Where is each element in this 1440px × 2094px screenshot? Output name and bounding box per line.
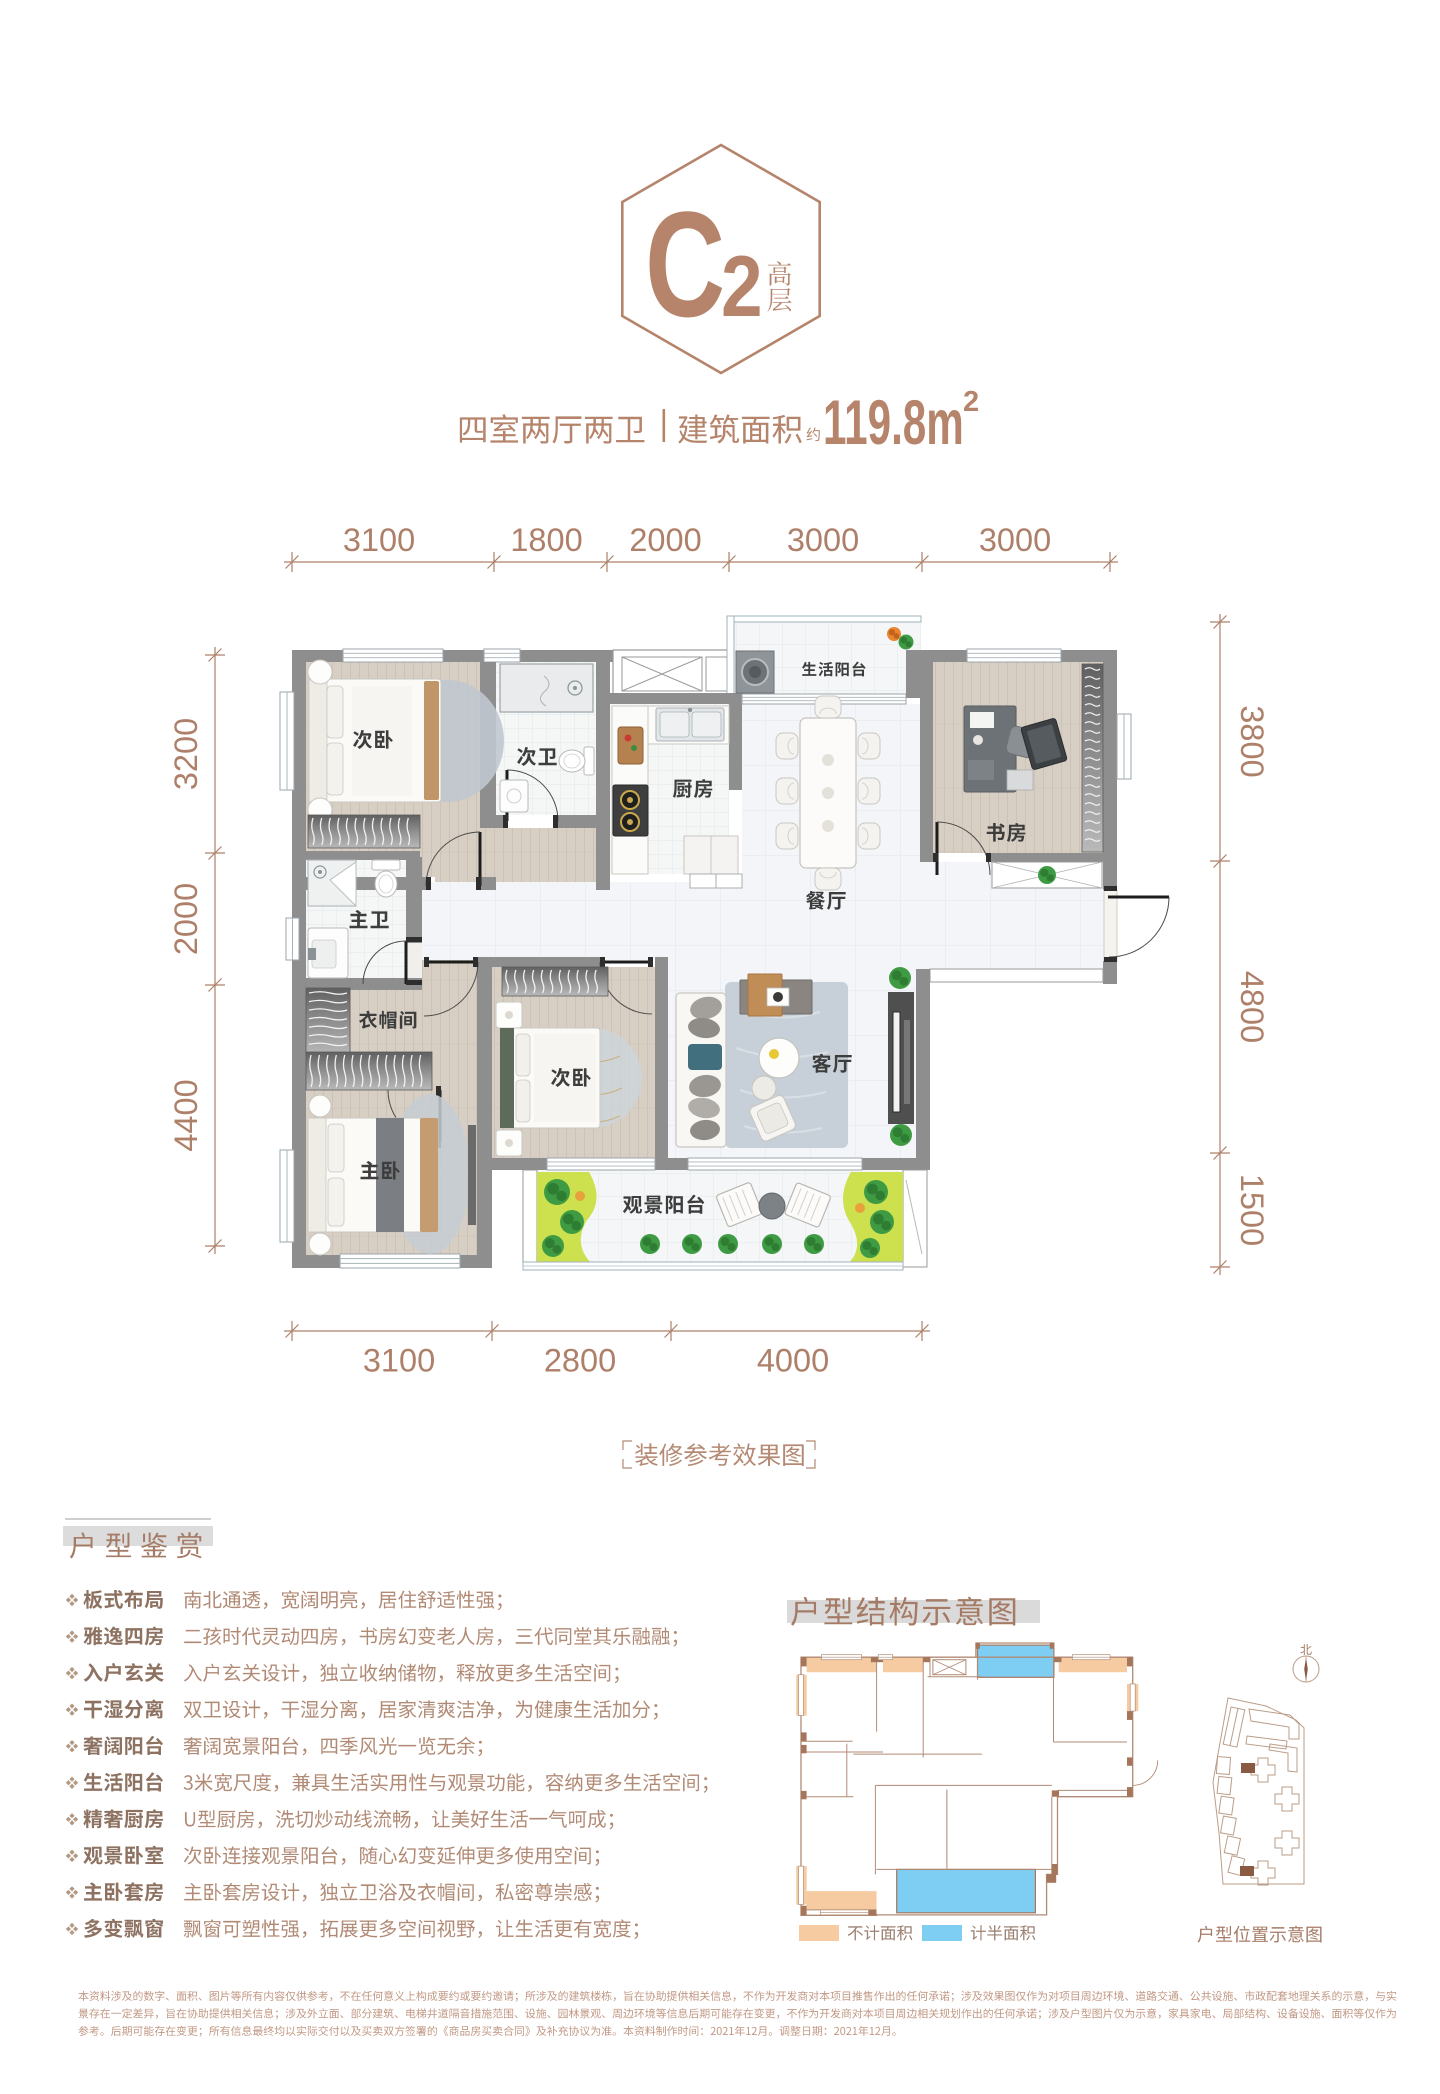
svg-text:2000: 2000 <box>168 883 204 955</box>
svg-text:2: 2 <box>963 386 979 418</box>
svg-text:119.8m: 119.8m <box>823 388 964 458</box>
svg-text:3000: 3000 <box>787 522 859 558</box>
svg-text:3000: 3000 <box>979 522 1051 558</box>
svg-text:4000: 4000 <box>757 1343 829 1379</box>
svg-text:2800: 2800 <box>544 1343 616 1379</box>
svg-text:3100: 3100 <box>343 522 415 558</box>
svg-text:1800: 1800 <box>510 522 582 558</box>
svg-text:4400: 4400 <box>168 1079 204 1151</box>
svg-text:3100: 3100 <box>363 1343 435 1379</box>
svg-text:3200: 3200 <box>168 718 204 790</box>
svg-text:4800: 4800 <box>1234 971 1270 1043</box>
svg-text:2: 2 <box>721 239 763 335</box>
svg-text:2000: 2000 <box>629 522 701 558</box>
svg-text:3800: 3800 <box>1234 705 1270 777</box>
svg-text:C: C <box>645 181 725 348</box>
svg-text:1500: 1500 <box>1234 1174 1270 1246</box>
